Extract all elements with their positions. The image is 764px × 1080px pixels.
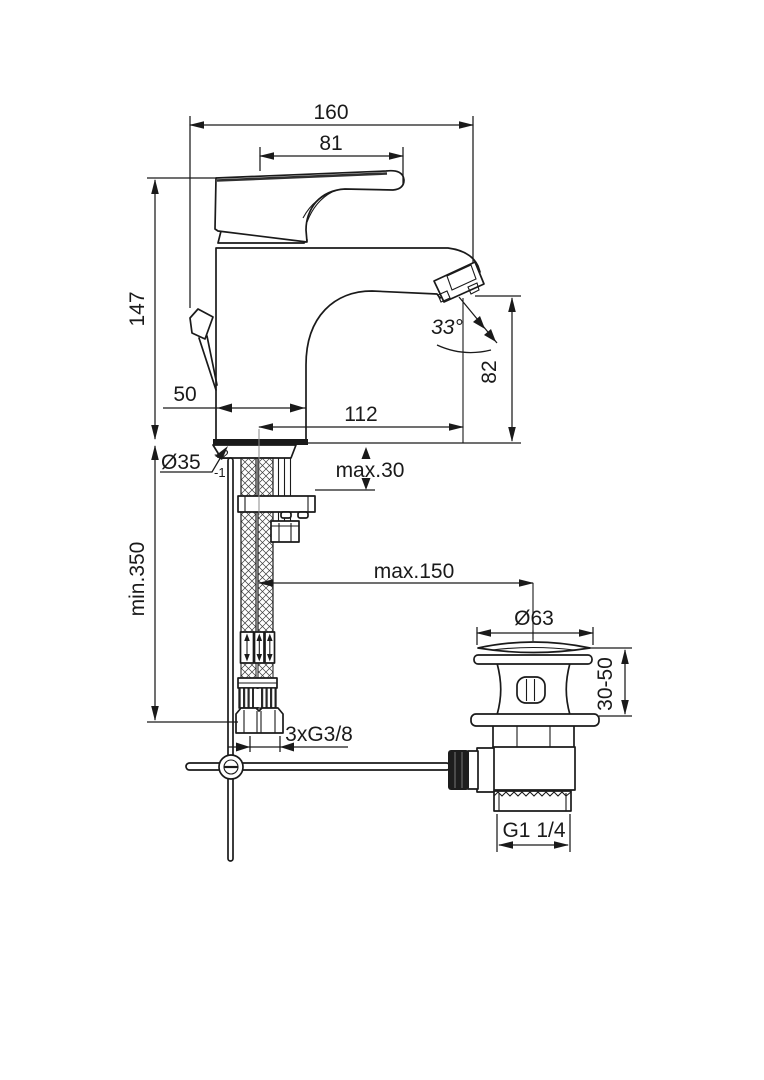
- label-hole-tol-lower: -1: [214, 465, 226, 480]
- side-port-nut: [448, 750, 469, 790]
- label-hose-length: min.350: [126, 542, 149, 617]
- waste-body-right: [566, 663, 570, 715]
- waste-assembly: [448, 631, 599, 812]
- hose-crimp-sleeves: [238, 632, 277, 708]
- hose-nuts: [236, 708, 283, 733]
- label-body-depth: 50: [173, 383, 196, 406]
- label-waste-thread: G1 1/4: [502, 819, 565, 842]
- flex-hose-left: [241, 458, 256, 633]
- waste-lower-body: [493, 747, 575, 790]
- handle-lever: [215, 171, 404, 242]
- label-waste-distance: max.150: [374, 560, 455, 583]
- label-total-length: 160: [313, 101, 348, 124]
- waste-body-left: [497, 663, 501, 715]
- dim-min350: [147, 446, 238, 722]
- mounting-bracket: [238, 496, 315, 512]
- bracket-hook-2: [298, 512, 308, 518]
- label-deck-thickness: max.30: [336, 459, 405, 482]
- bracket-hook-1: [281, 512, 291, 518]
- label-spray-angle: 33°: [431, 316, 463, 339]
- dim-max150: [259, 583, 533, 641]
- faucet-outline: [190, 171, 484, 458]
- label-supply-thread: 3xG3/8: [285, 723, 353, 746]
- label-waste-height-range: 30-50: [594, 657, 617, 711]
- side-port-ring: [468, 751, 478, 789]
- flex-hose-right: [258, 458, 273, 633]
- waste-upper-flange: [474, 655, 592, 664]
- pull-rod-knob: [190, 309, 213, 339]
- base-seal: [213, 439, 308, 445]
- below-deck-assembly: [228, 458, 315, 861]
- label-spout-reach: 112: [344, 403, 377, 426]
- pull-rod: [228, 458, 233, 861]
- technical-drawing-canvas: 160 81 147 50 112 33° 82 Ø35 +2 -1 max.3…: [0, 0, 764, 1080]
- dimension-labels: 160 81 147 50 112 33° 82 Ø35 +2 -1 max.3…: [126, 101, 617, 842]
- label-hole-tol-upper: +2: [214, 447, 229, 462]
- waste-lower-flange: [471, 714, 599, 726]
- basin-mixer-drawing: 160 81 147 50 112 33° 82 Ø35 +2 -1 max.3…: [0, 0, 764, 1080]
- label-hole-diameter: Ø35: [161, 451, 201, 474]
- mounting-nut: [271, 521, 299, 542]
- side-port-hub: [477, 748, 494, 792]
- overflow-window: [517, 677, 545, 703]
- label-cap-diameter: Ø63: [514, 607, 554, 630]
- label-body-height: 147: [126, 291, 149, 326]
- label-spout-height: 82: [478, 360, 501, 383]
- label-handle-length: 81: [319, 132, 342, 155]
- pop-up-linkage: [186, 755, 450, 779]
